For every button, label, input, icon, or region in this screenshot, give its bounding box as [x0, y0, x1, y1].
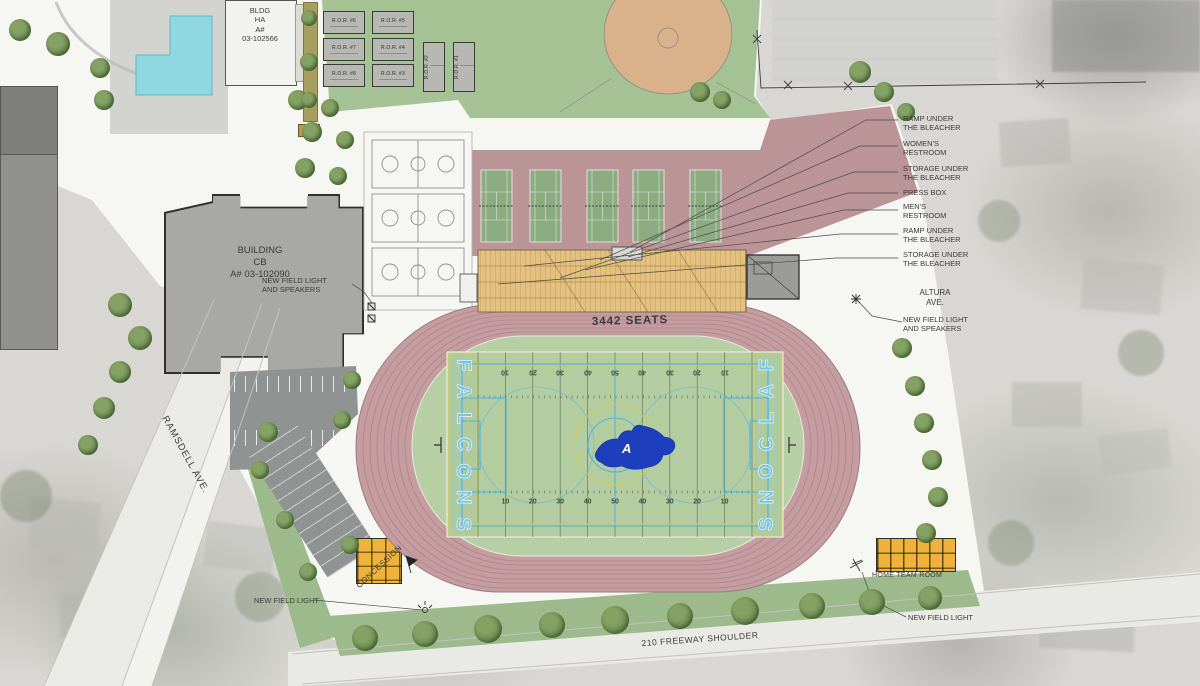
yard-number: 40	[584, 499, 592, 506]
tree	[9, 19, 31, 41]
tree	[731, 597, 759, 625]
aerial-building	[1052, 0, 1200, 72]
yard-number: 20	[529, 369, 537, 376]
yard-number: 40	[638, 499, 646, 506]
endzone-letter: C	[758, 437, 776, 451]
tree	[352, 625, 378, 651]
endzone-letter: L	[758, 412, 776, 424]
tree	[474, 615, 502, 643]
bleacher-callout: MEN'S RESTROOM	[903, 202, 946, 221]
endzone-team-name-west: FALCONS	[449, 356, 477, 533]
aerial-house	[1012, 382, 1082, 427]
aerial-tree	[978, 200, 1020, 242]
ror-unit: R.O.R. #7	[323, 38, 365, 61]
bleacher-callout: WOMEN'S RESTROOM	[903, 139, 946, 158]
yard-number: 20	[693, 369, 701, 376]
tree	[251, 461, 269, 479]
yard-number: 10	[721, 499, 729, 506]
yard-number: 30	[666, 499, 674, 506]
altura-ave-label: ALTURA AVE.	[905, 288, 965, 308]
building-ha-label: BLDG HA A# 03-102566	[226, 6, 294, 44]
home-team-room-label: HOME TEAM ROOM	[872, 572, 942, 581]
tree	[90, 58, 110, 78]
tree	[299, 563, 317, 581]
tree	[892, 338, 912, 358]
bleacher-callout: STORAGE UNDER THE BLEACHER	[903, 164, 968, 183]
tree	[916, 523, 936, 543]
tree	[918, 586, 942, 610]
yard-number: 20	[529, 499, 537, 506]
bleacher-callout: RAMP UNDER THE BLEACHER	[903, 226, 961, 245]
yard-number: 30	[556, 369, 564, 376]
building-west-lower	[0, 154, 58, 350]
endzone-letter: S	[454, 517, 472, 530]
endzone-letter: O	[454, 463, 472, 479]
yard-number: 10	[501, 499, 509, 506]
tree	[914, 413, 934, 433]
endzone-team-name-east: FALCONS	[753, 356, 781, 533]
yard-number: 30	[556, 499, 564, 506]
tree	[93, 397, 115, 419]
bleacher-callout: STORAGE UNDER THE BLEACHER	[903, 250, 968, 269]
tree	[799, 593, 825, 619]
home-team-room-building	[876, 538, 956, 572]
tree	[874, 82, 894, 102]
tree	[108, 293, 132, 317]
new-field-light-label-southwest: NEW FIELD LIGHT	[254, 596, 319, 605]
tree	[690, 82, 710, 102]
tree	[539, 612, 565, 638]
yard-number: 40	[638, 369, 646, 376]
endzone-letter: F	[454, 359, 472, 371]
ror-unit: R.O.R. #4	[372, 38, 414, 61]
tree	[78, 435, 98, 455]
ror-unit: R.O.R. #2	[423, 42, 445, 92]
aerial-house	[1080, 259, 1164, 316]
aerial-tree	[0, 470, 52, 522]
aerial-tree	[1118, 330, 1164, 376]
aerial-house	[999, 118, 1072, 168]
bleacher-callout: RAMP UNDER THE BLEACHER	[903, 114, 961, 133]
endzone-letter: S	[758, 517, 776, 530]
tree	[94, 90, 114, 110]
endzone-letter: N	[454, 490, 472, 504]
ror-unit: R.O.R. #6	[323, 11, 365, 34]
tree	[412, 621, 438, 647]
aerial-house	[1098, 428, 1172, 476]
tree	[341, 536, 359, 554]
tree	[336, 131, 354, 149]
tree	[928, 487, 948, 507]
endzone-letter: A	[454, 384, 472, 398]
yard-number: 10	[721, 369, 729, 376]
yard-number: 20	[693, 499, 701, 506]
tree	[667, 603, 693, 629]
endzone-letter: F	[758, 359, 776, 371]
site-plan: BLDG HA A# 03-102566 BUILDING CB A# 03-1…	[0, 0, 1200, 686]
tree	[601, 606, 629, 634]
ror-unit: R.O.R. #5	[372, 11, 414, 34]
new-field-light-speakers-label-east: NEW FIELD LIGHT AND SPEAKERS	[903, 315, 968, 334]
tree	[329, 167, 347, 185]
endzone-letter: O	[758, 463, 776, 479]
endzone-letter: N	[758, 490, 776, 504]
yard-number: 50	[611, 369, 619, 376]
tree	[46, 32, 70, 56]
tree	[128, 326, 152, 350]
endzone-letter: L	[454, 412, 472, 424]
yard-number: 40	[584, 369, 592, 376]
tree	[922, 450, 942, 470]
tree	[321, 99, 339, 117]
tree	[276, 511, 294, 529]
endzone-letter: A	[758, 384, 776, 398]
endzone-letter: C	[454, 437, 472, 451]
tree	[295, 158, 315, 178]
tree	[300, 53, 318, 71]
parking-stalls	[234, 376, 352, 392]
tree	[849, 61, 871, 83]
new-field-light-speakers-label-west: NEW FIELD LIGHT AND SPEAKERS	[262, 276, 352, 295]
tree	[301, 92, 317, 108]
aerial-tree	[988, 520, 1034, 566]
ror-unit: R.O.R. #3	[372, 64, 414, 87]
building-west-upper	[0, 86, 58, 156]
bleacher-callout: PRESS BOX	[903, 188, 946, 197]
falcon-logo-letter: A	[622, 441, 631, 457]
tree	[333, 411, 351, 429]
yard-number: 50	[611, 499, 619, 506]
tree	[343, 371, 361, 389]
tree	[302, 122, 322, 142]
tree	[301, 10, 317, 26]
ror-unit: R.O.R. #1	[453, 42, 475, 92]
pool-deck	[110, 0, 228, 134]
aerial-parking-rows	[772, 0, 998, 84]
new-field-light-label-southeast: NEW FIELD LIGHT	[908, 613, 973, 622]
tree	[713, 91, 731, 109]
ror-unit: R.O.R. #8	[323, 64, 365, 87]
tree	[905, 376, 925, 396]
yard-number: 10	[501, 369, 509, 376]
yard-number: 30	[666, 369, 674, 376]
tree	[859, 589, 885, 615]
tree	[109, 361, 131, 383]
tree	[258, 422, 278, 442]
